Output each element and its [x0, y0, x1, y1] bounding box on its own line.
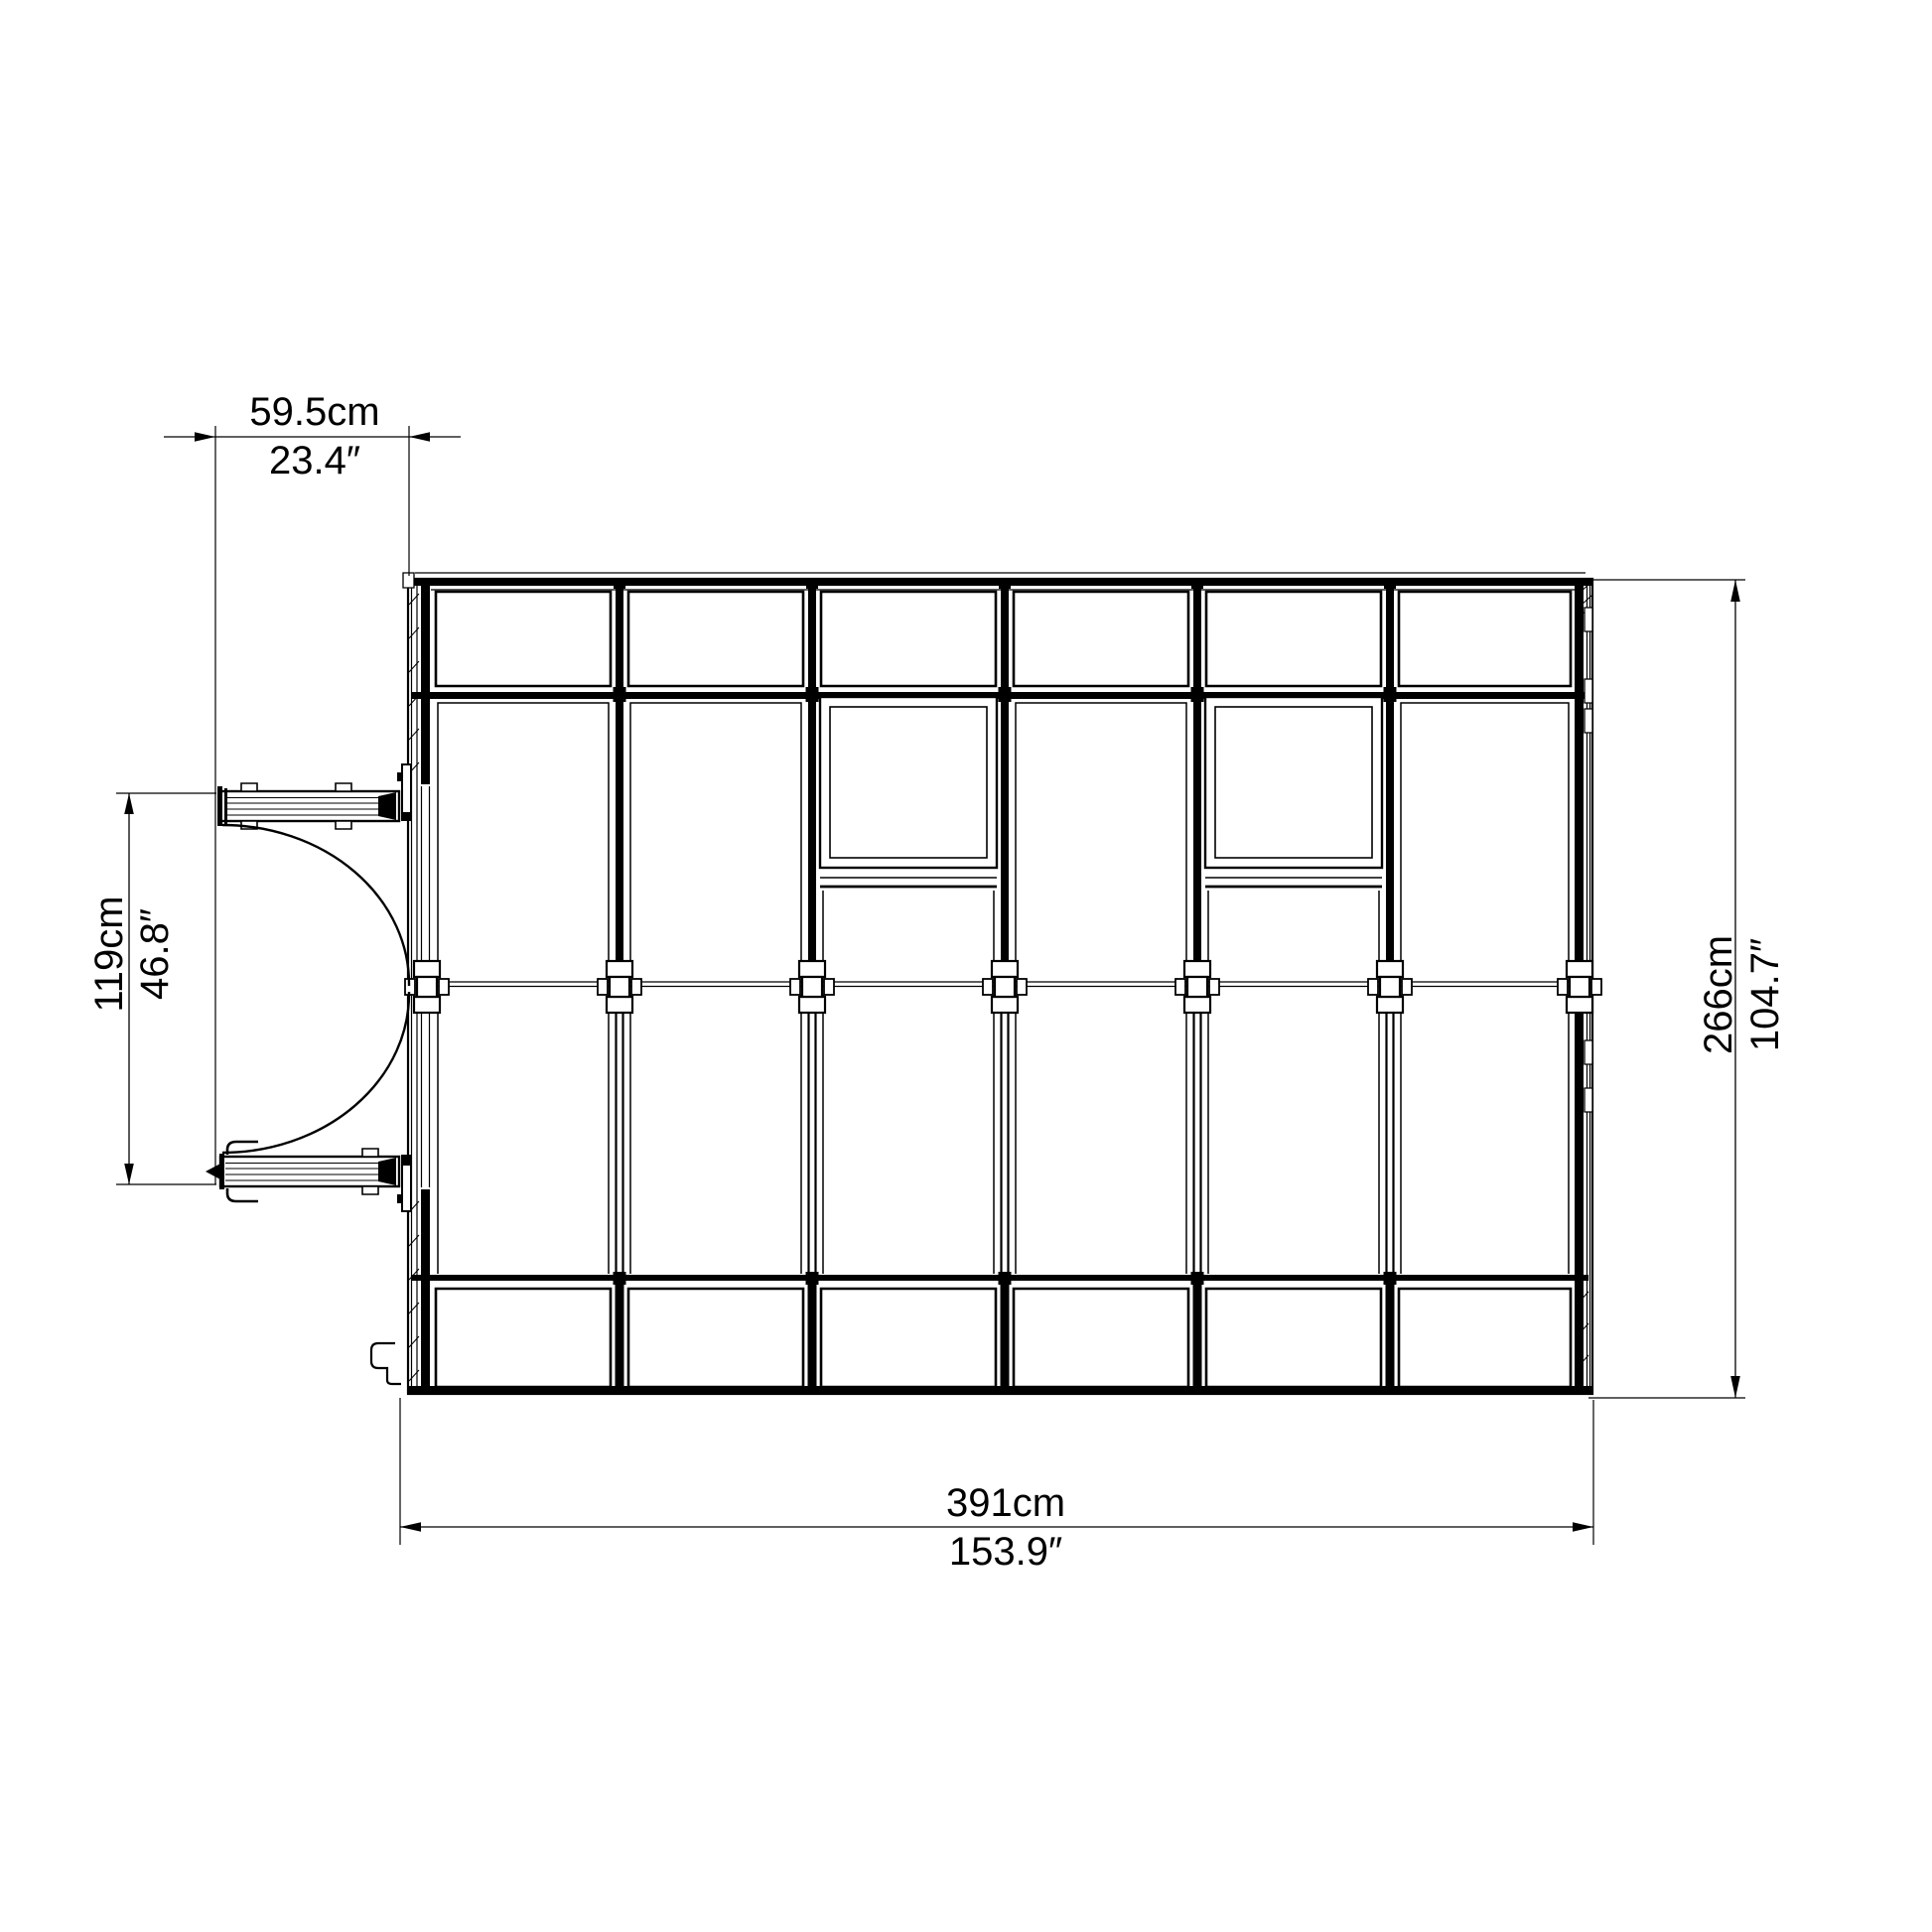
- depth-metric-label: 266cm: [1697, 935, 1740, 1054]
- door-panel: [220, 791, 399, 821]
- roof-window-right: [1205, 697, 1382, 887]
- window-outer-frame: [1205, 697, 1382, 868]
- door-width-metric-label: 59.5cm: [249, 390, 379, 434]
- drawing-page: 59.5cm 23.4″ 119cm 46.8″ 266cm 104.7″ 39…: [0, 0, 1932, 1932]
- door-hinge-plate: [402, 764, 411, 820]
- door-span-metric-label: 119cm: [87, 896, 131, 1012]
- door-span-imperial-label: 46.8″: [133, 908, 177, 1000]
- window-outer-frame: [820, 697, 997, 868]
- width-imperial-label: 153.9″: [949, 1530, 1062, 1574]
- roof-window-left: [820, 697, 997, 887]
- depth-imperial-label: 104.7″: [1743, 938, 1787, 1051]
- door-width-imperial-label: 23.4″: [269, 439, 360, 483]
- page-background: [0, 0, 1932, 1932]
- greenhouse-top-view-diagram: 59.5cm 23.4″ 119cm 46.8″ 266cm 104.7″ 39…: [0, 0, 1932, 1932]
- door-panel: [220, 1157, 399, 1186]
- width-metric-label: 391cm: [946, 1481, 1065, 1525]
